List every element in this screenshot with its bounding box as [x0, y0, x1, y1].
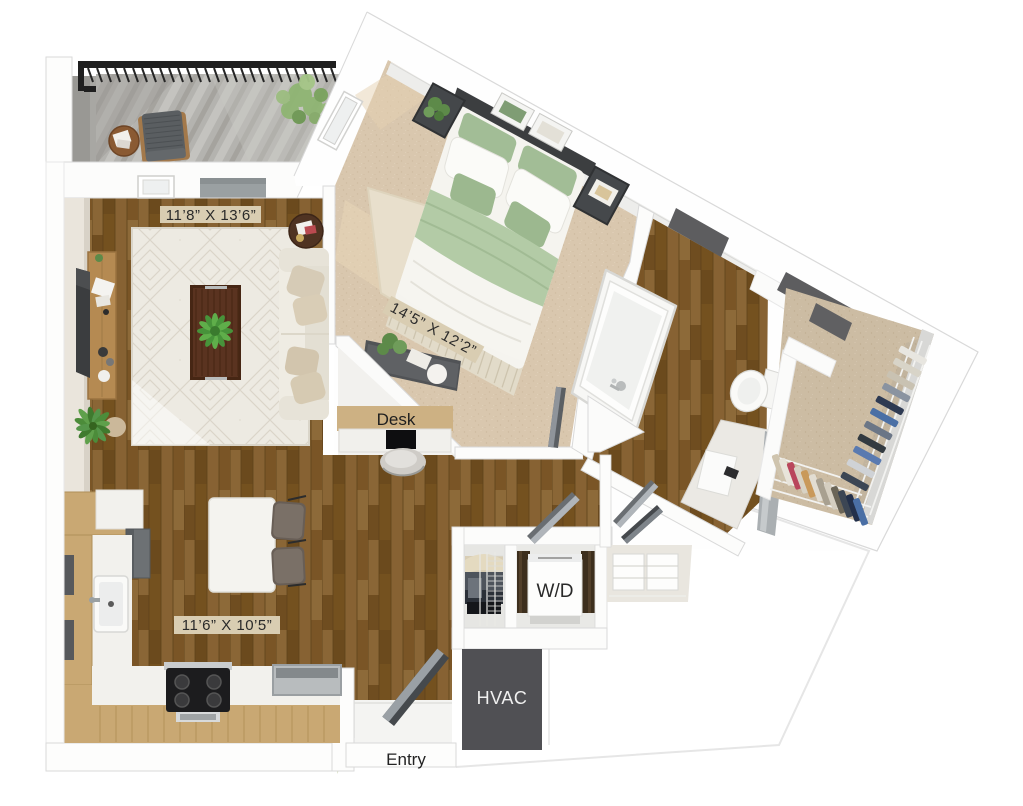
svg-text:W/D: W/D [537, 581, 574, 602]
svg-text:11’8” X 13’6”: 11’8” X 13’6” [166, 207, 256, 224]
svg-text:11’6” X 10’5”: 11’6” X 10’5” [182, 617, 272, 634]
svg-text:Entry: Entry [386, 750, 426, 769]
svg-text:HVAC: HVAC [477, 688, 528, 708]
svg-text:Desk: Desk [377, 410, 416, 429]
